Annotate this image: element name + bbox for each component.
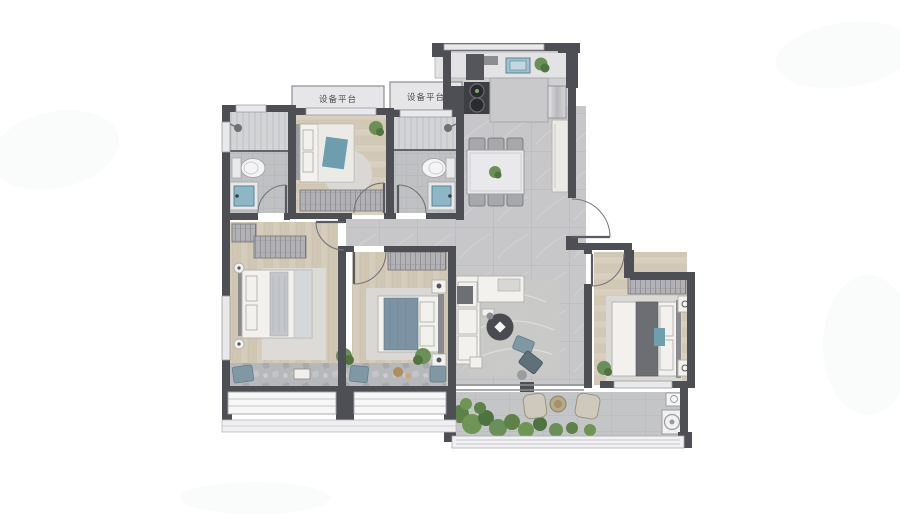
toilet-icon bbox=[241, 159, 265, 178]
hallway-floor bbox=[346, 219, 458, 246]
entry-cabinet bbox=[552, 120, 568, 192]
kitchen-island bbox=[490, 78, 548, 122]
dining-chair bbox=[469, 138, 485, 151]
dining-chair bbox=[507, 138, 523, 151]
equipment-platform-left-label: 设备平台 bbox=[319, 94, 357, 104]
dining-chair bbox=[469, 193, 485, 206]
pouf bbox=[517, 370, 527, 380]
window bbox=[444, 44, 544, 50]
kitchen-flue bbox=[466, 54, 484, 80]
shower-area bbox=[394, 117, 456, 150]
window bbox=[400, 110, 452, 117]
wardrobe bbox=[254, 236, 306, 258]
toilet-icon bbox=[422, 159, 446, 178]
window bbox=[236, 105, 266, 112]
bay-cushion bbox=[349, 365, 369, 383]
balcony-chair bbox=[522, 393, 547, 420]
bed-duvet bbox=[384, 298, 418, 350]
dining-chair bbox=[507, 193, 523, 206]
equipment-platform-right-label: 设备平台 bbox=[407, 92, 445, 102]
window bbox=[222, 296, 230, 360]
bed-blanket bbox=[294, 270, 312, 338]
dining-chair bbox=[488, 193, 504, 206]
sofa-pillow bbox=[457, 286, 473, 304]
balcony-railing bbox=[452, 436, 684, 448]
toilet-tank bbox=[446, 158, 455, 178]
window bbox=[306, 108, 376, 115]
balcony-chair bbox=[574, 392, 601, 420]
dining-chair bbox=[488, 138, 504, 151]
bay-cushion bbox=[430, 366, 446, 382]
wardrobe bbox=[232, 224, 256, 242]
dining-area bbox=[467, 138, 524, 206]
wardrobe bbox=[388, 252, 446, 270]
wardrobe bbox=[300, 190, 384, 211]
balcony-basin bbox=[666, 393, 682, 406]
tea-set bbox=[393, 367, 403, 377]
cutting-board bbox=[482, 56, 498, 65]
bay-tray bbox=[294, 369, 310, 379]
window bbox=[222, 122, 230, 152]
toilet-tank bbox=[232, 158, 241, 178]
floor-plan-canvas: 设备平台 设备平台 bbox=[0, 0, 900, 523]
window bbox=[614, 381, 672, 388]
bay-cushion bbox=[232, 365, 254, 384]
headboard bbox=[438, 294, 444, 354]
fridge bbox=[548, 86, 566, 118]
side-table bbox=[470, 357, 482, 368]
floor-plan-page: 设备平台 设备平台 bbox=[0, 0, 900, 523]
bed-throw bbox=[322, 137, 348, 170]
bed-pillow-teal bbox=[654, 328, 665, 346]
vanity-sink bbox=[432, 186, 451, 206]
